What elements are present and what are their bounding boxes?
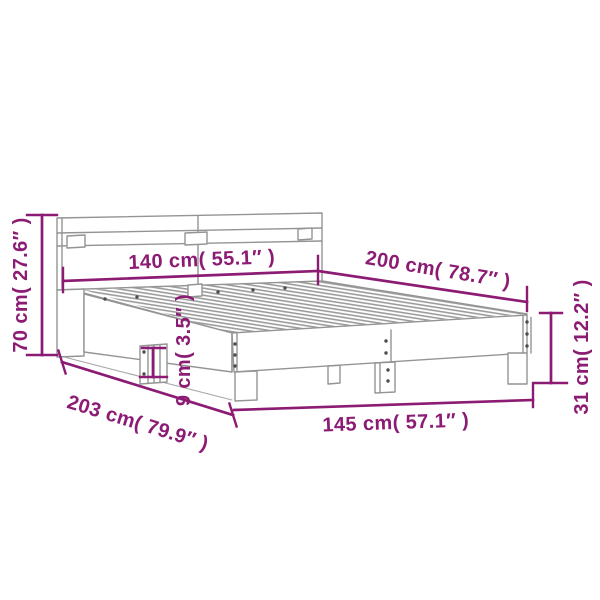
product-dimension-diagram: 70 cm( 27.6″ ) 140 cm( 55.1″ ) 200 cm( 7… [0,0,600,600]
foot-left-leg [235,371,257,401]
headboard-clip-center [185,232,207,245]
dimension-foot-height [535,313,567,383]
dimension-label-headboard-height: 70 cm( 27.6″ ) [10,217,32,352]
headboard-left-leg [57,289,84,357]
dimension-label-total-width: 145 cm( 57.1″ ) [322,409,469,436]
mid-right-leg [375,362,395,393]
foot-right-leg [508,353,527,384]
center-leg [328,365,340,384]
bed-frame-dimension-drawing: 70 cm( 27.6″ ) 140 cm( 55.1″ ) 200 cm( 7… [0,0,600,600]
headboard-clip-right [298,228,312,240]
dimension-label-rail-height: 9 cm( 3.5″ ) [173,294,195,406]
dimension-label-bed-length: 200 cm( 78.7″ ) [364,247,512,293]
bed-frame-illustration [57,213,531,401]
dimension-label-foot-height: 31 cm( 12.2″ ) [571,279,593,414]
headboard-clip-left [67,235,85,248]
